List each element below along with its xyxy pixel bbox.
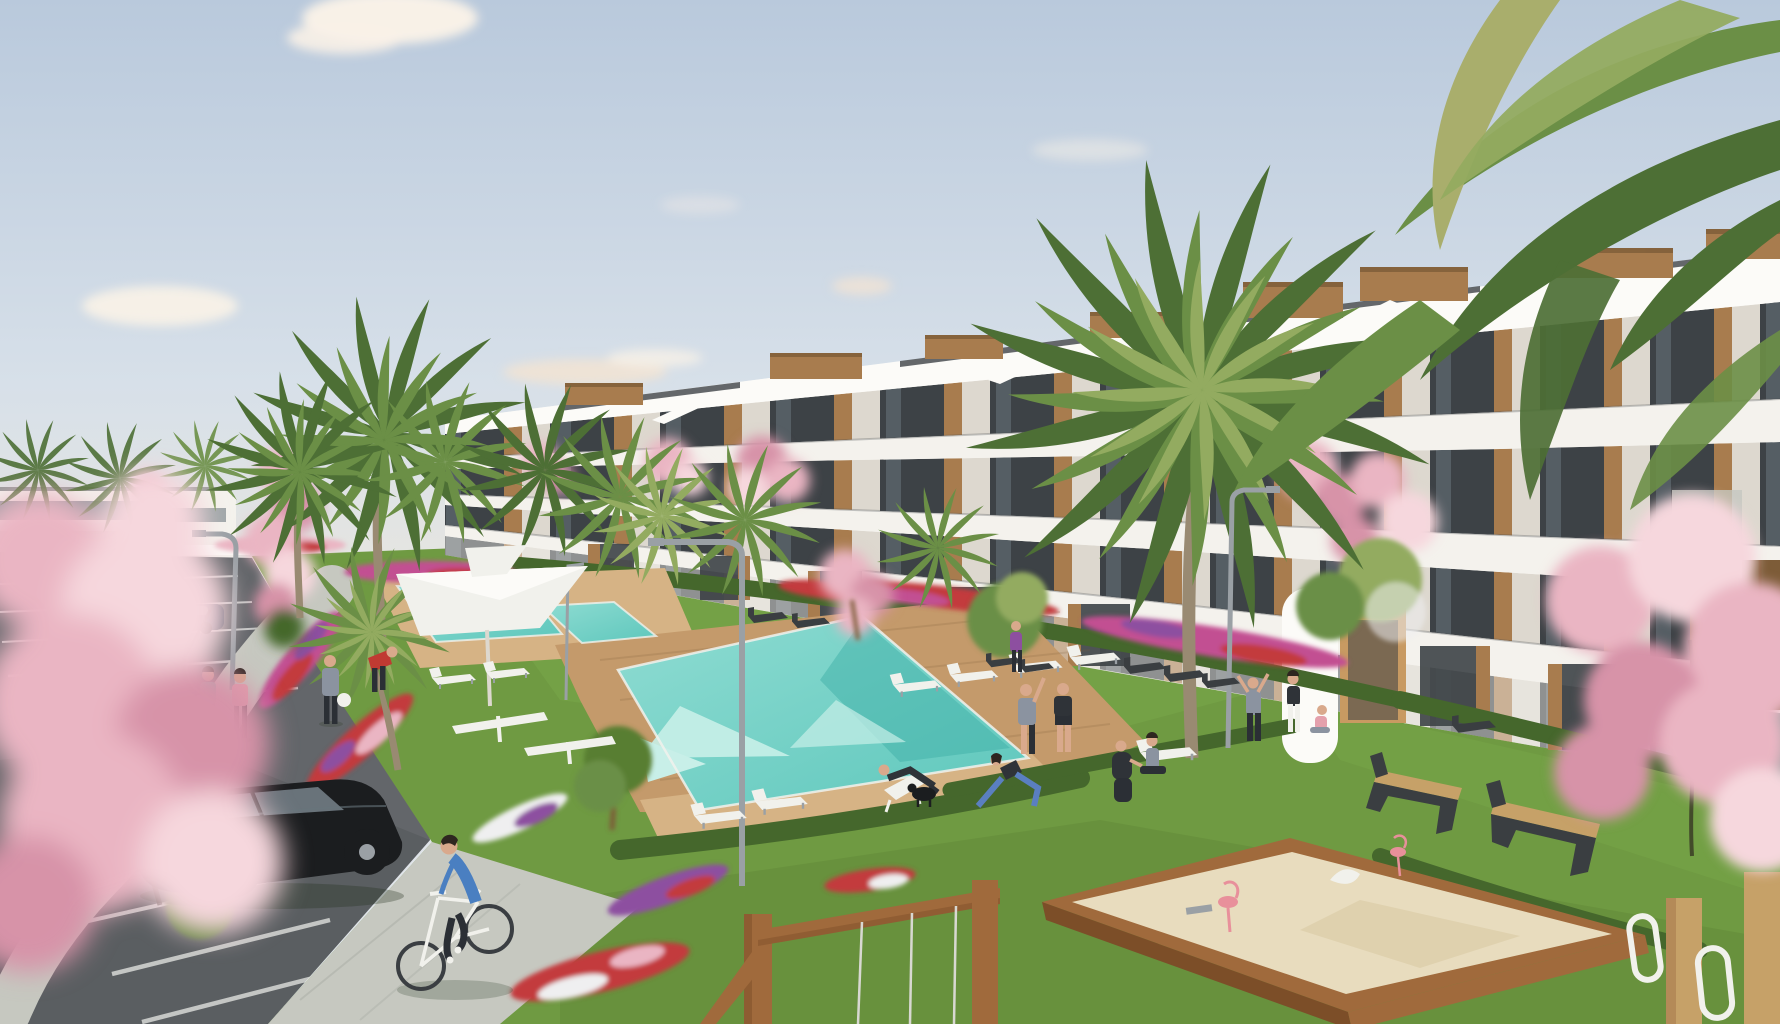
scene-svg (0, 0, 1780, 1024)
rendering-canvas (0, 0, 1780, 1024)
